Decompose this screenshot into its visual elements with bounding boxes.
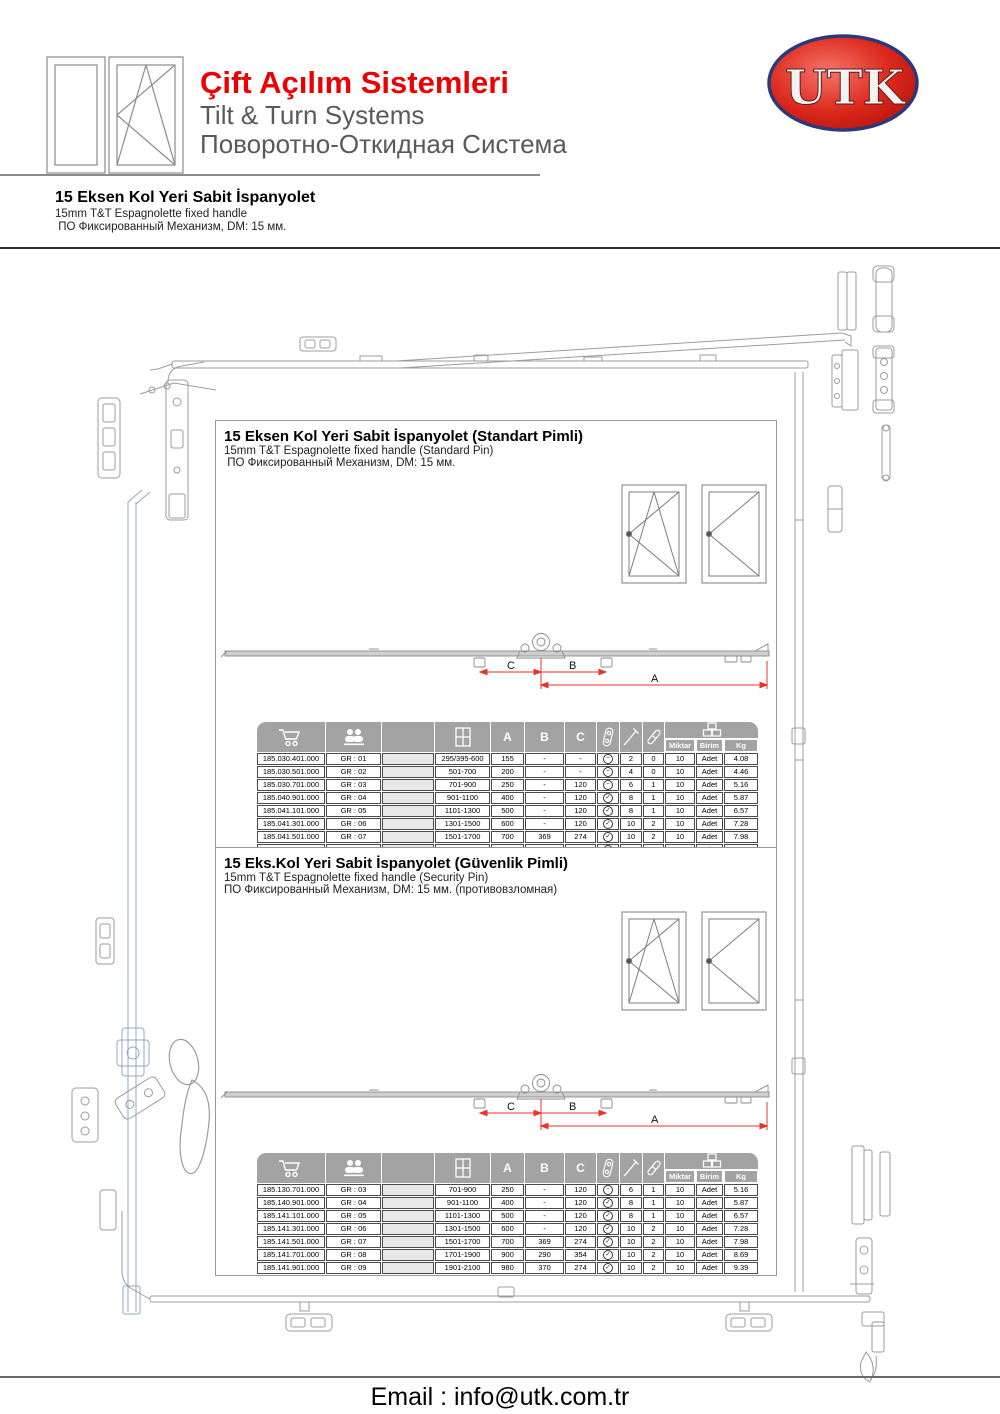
table-cell: 10 xyxy=(665,1184,695,1196)
table-cell: 600 xyxy=(491,818,524,830)
table-row: 185.040.901.000GR : 04901-1100400-120✓81… xyxy=(257,792,758,804)
table-cell xyxy=(382,1210,434,1222)
table-cell: 370 xyxy=(525,1262,564,1274)
subheader-miktar: Miktar xyxy=(665,1170,695,1183)
table-cell: Adet xyxy=(696,818,723,830)
pin-status-cell: − xyxy=(597,753,619,765)
table-cell: 185.141.501.000 xyxy=(257,1236,325,1248)
column-a-header: A xyxy=(491,722,524,752)
espagnolette-drawing: C B A xyxy=(219,1068,773,1140)
pin-status-cell: ✓ xyxy=(597,831,619,843)
table-row: 185.041.501.000GR : 071501-1700700369274… xyxy=(257,831,758,843)
table-cell: 185.141.101.000 xyxy=(257,1210,325,1222)
minus-circle-icon: − xyxy=(603,1185,613,1195)
table-cell: 1 xyxy=(643,1210,664,1222)
pin-status-cell: ✓ xyxy=(597,792,619,804)
section-subtitle-ru: ПО Фиксированный Механизм, DM: 15 мм. xyxy=(224,457,776,469)
window-type-diagrams xyxy=(620,908,772,1018)
table-cell: 0 xyxy=(643,753,664,765)
subheader-kg: Kg xyxy=(724,1170,758,1183)
table-row: 185.141.701.000GR : 081701-1900900290354… xyxy=(257,1249,758,1261)
table-cell: 6.57 xyxy=(724,1210,758,1222)
column-b-header: B xyxy=(525,722,564,752)
corner-drive-drawing xyxy=(166,362,204,520)
check-circle-icon: ✓ xyxy=(603,1250,613,1260)
check-circle-icon: ✓ xyxy=(603,793,613,803)
table-cell: 701-900 xyxy=(435,779,490,791)
table-cell: 2 xyxy=(643,1249,664,1261)
section-title: 15 Eks.Kol Yeri Sabit İspanyolet (Güvenl… xyxy=(224,855,776,872)
table-cell xyxy=(382,1184,434,1196)
column-c-header: C xyxy=(565,1153,596,1183)
table-cell: 2 xyxy=(643,1262,664,1274)
table-cell: 120 xyxy=(565,779,596,791)
table-cell: 1 xyxy=(643,1197,664,1209)
table-cell: 185.041.501.000 xyxy=(257,831,325,843)
pin-status-cell: ✓ xyxy=(597,1223,619,1235)
table-cell: Adet xyxy=(696,1197,723,1209)
table-cell: 0 xyxy=(643,766,664,778)
table-cell: 185.041.101.000 xyxy=(257,805,325,817)
brand-title-ru: Поворотно-Откидная Система xyxy=(200,130,567,159)
minus-circle-icon: − xyxy=(603,754,613,764)
dimension-label-a: A xyxy=(651,673,659,685)
table-cell: Adet xyxy=(696,1184,723,1196)
page-divider xyxy=(0,247,1000,249)
check-circle-icon: ✓ xyxy=(603,832,613,842)
table-cell: 185.030.701.000 xyxy=(257,779,325,791)
table-cell: Adet xyxy=(696,1262,723,1274)
table-cell: GR : 06 xyxy=(326,818,381,830)
cam-pin-icon xyxy=(601,1157,615,1179)
dimension-label-a: A xyxy=(651,1114,659,1126)
table-cell: 120 xyxy=(565,818,596,830)
table-cell: 155 xyxy=(491,753,524,765)
pin-status-cell: ✓ xyxy=(597,1236,619,1248)
table-cell: GR : 01 xyxy=(326,753,381,765)
table-cell: 1501-1700 xyxy=(435,1236,490,1248)
table-cell: GR : 02 xyxy=(326,766,381,778)
section-security-pin: 15 Eks.Kol Yeri Sabit İspanyolet (Güvenl… xyxy=(215,847,777,1276)
pin-status-cell: ✓ xyxy=(597,805,619,817)
cam-pin-icon xyxy=(601,726,615,748)
table-cell: - xyxy=(565,766,596,778)
pin-status-cell: − xyxy=(597,766,619,778)
table-cell: 5.16 xyxy=(724,1184,758,1196)
table-cell: 185.041.301.000 xyxy=(257,818,325,830)
table-cell: Adet xyxy=(696,1210,723,1222)
table-cell: 185.141.901.000 xyxy=(257,1262,325,1274)
check-circle-icon: ✓ xyxy=(603,1198,613,1208)
table-cell: 10 xyxy=(620,1262,642,1274)
table-cell: 501-700 xyxy=(435,766,490,778)
table-cell: 185.030.501.000 xyxy=(257,766,325,778)
section-standard-pin: 15 Eksen Kol Yeri Sabit İspanyolet (Stan… xyxy=(215,420,777,847)
table-cell xyxy=(382,1249,434,1261)
table-cell xyxy=(382,779,434,791)
table-cell xyxy=(382,818,434,830)
check-circle-icon: ✓ xyxy=(603,1237,613,1247)
window-type-diagrams xyxy=(620,481,772,591)
table-cell: 185.040.901.000 xyxy=(257,792,325,804)
table-cell: 400 xyxy=(491,1197,524,1209)
table-cell: 10 xyxy=(665,792,695,804)
brand-title-tr: Çift Açılım Sistemleri xyxy=(200,66,567,101)
table-cell xyxy=(382,792,434,804)
table-cell: 7.98 xyxy=(724,831,758,843)
column-b-header: B xyxy=(525,1153,564,1183)
table-row: 185.141.901.000GR : 091901-2100980370274… xyxy=(257,1262,758,1274)
pin-status-cell: ✓ xyxy=(597,1249,619,1261)
side-rail-drawing xyxy=(792,372,805,1292)
table-cell: GR : 06 xyxy=(326,1223,381,1235)
table-cell: 700 xyxy=(491,831,524,843)
table-cell: 10 xyxy=(665,1223,695,1235)
table-cell: 10 xyxy=(665,1236,695,1248)
subheader-kg: Kg xyxy=(724,739,758,752)
table-cell: 1501-1700 xyxy=(435,831,490,843)
table-cell: Adet xyxy=(696,831,723,843)
espagnolette-drawing: C B A xyxy=(219,627,773,699)
table-cell: 10 xyxy=(620,831,642,843)
table-cell: - xyxy=(525,1197,564,1209)
pin-icon xyxy=(646,727,662,747)
table-cell: GR : 09 xyxy=(326,1262,381,1274)
table-cell: 10 xyxy=(620,1223,642,1235)
table-cell: 600 xyxy=(491,1223,524,1235)
table-row: 185.140.901.000GR : 04901-1100400-120✓81… xyxy=(257,1197,758,1209)
left-accessories-drawings xyxy=(72,918,167,1230)
table-cell: GR : 07 xyxy=(326,1236,381,1248)
table-cell: 2 xyxy=(643,1223,664,1235)
cart-icon xyxy=(278,727,304,747)
table-cell: - xyxy=(525,753,564,765)
pin-status-cell: ✓ xyxy=(597,1197,619,1209)
table-cell: 10 xyxy=(620,1249,642,1261)
table-cell: 10 xyxy=(665,1210,695,1222)
table-row: 185.141.301.000GR : 061301-1500600-120✓1… xyxy=(257,1223,758,1235)
table-cell: - xyxy=(525,1210,564,1222)
table-cell: 290 xyxy=(525,1249,564,1261)
check-circle-icon: ✓ xyxy=(603,806,613,816)
table-cell: 6 xyxy=(620,1184,642,1196)
table-cell: 4.08 xyxy=(724,753,758,765)
table-cell: - xyxy=(565,753,596,765)
table-cell: 1901-2100 xyxy=(435,1262,490,1274)
product-subtitle-en: 15mm T&T Espagnolette fixed handle xyxy=(55,208,315,220)
table-row: 185.130.701.000GR : 03701-900250-120−611… xyxy=(257,1184,758,1196)
table-cell: 369 xyxy=(525,1236,564,1248)
table-cell: 901-1100 xyxy=(435,1197,490,1209)
table-cell: 5.87 xyxy=(724,792,758,804)
table-cell: - xyxy=(525,1184,564,1196)
espagnolette-rail-drawing xyxy=(117,490,150,1314)
subheader-birim: Birim xyxy=(696,739,723,752)
table-cell: 10 xyxy=(620,818,642,830)
table-cell xyxy=(382,1262,434,1274)
table-cell xyxy=(382,766,434,778)
window-grid-icon xyxy=(454,727,472,747)
table-cell: 120 xyxy=(565,805,596,817)
table-cell: 120 xyxy=(565,1223,596,1235)
table-cell: 6.57 xyxy=(724,805,758,817)
table-cell: GR : 04 xyxy=(326,792,381,804)
table-cell: 980 xyxy=(491,1262,524,1274)
table-cell: 900 xyxy=(491,1249,524,1261)
window-grid-icon xyxy=(454,1158,472,1178)
table-cell: Adet xyxy=(696,766,723,778)
window-logo-icon xyxy=(45,55,185,175)
pin-status-cell: ✓ xyxy=(597,818,619,830)
table-cell xyxy=(382,1236,434,1248)
pin-icon xyxy=(646,1158,662,1178)
table-cell: GR : 08 xyxy=(326,1249,381,1261)
package-icon xyxy=(701,722,723,738)
table-cell: - xyxy=(525,805,564,817)
pin-status-cell: ✓ xyxy=(597,1262,619,1274)
table-cell: 185.141.301.000 xyxy=(257,1223,325,1235)
table-cell: GR : 03 xyxy=(326,779,381,791)
table-cell: 9.39 xyxy=(724,1262,758,1274)
minus-circle-icon: − xyxy=(603,767,613,777)
table-cell: 120 xyxy=(565,1210,596,1222)
table-cell: 901-1100 xyxy=(435,792,490,804)
cart-icon xyxy=(278,1158,304,1178)
section-subtitle-ru: ПО Фиксированный Механизм, DM: 15 мм. (п… xyxy=(224,884,776,896)
table-cell: 120 xyxy=(565,792,596,804)
section-subtitle-en: 15mm T&T Espagnolette fixed handle (Secu… xyxy=(224,872,776,884)
table-cell: 274 xyxy=(565,1262,596,1274)
table-cell: GR : 05 xyxy=(326,1210,381,1222)
table-cell: 701-900 xyxy=(435,1184,490,1196)
table-cell: 700 xyxy=(491,1236,524,1248)
product-table-security: A B C Miktar Birim Kg 185.130.701.000GR … xyxy=(256,1152,759,1275)
table-cell: 10 xyxy=(665,1197,695,1209)
top-stay-arm-drawing xyxy=(140,333,851,394)
accessory-parts-drawings xyxy=(828,266,894,532)
table-cell: 5.16 xyxy=(724,779,758,791)
table-cell: 500 xyxy=(491,805,524,817)
table-cell: 7.28 xyxy=(724,818,758,830)
subheader-birim: Birim xyxy=(696,1170,723,1183)
pin-status-cell: ✓ xyxy=(597,1210,619,1222)
table-cell: 295/395-600 xyxy=(435,753,490,765)
table-cell: 10 xyxy=(665,831,695,843)
table-cell: 369 xyxy=(525,831,564,843)
table-cell: 1 xyxy=(643,1184,664,1196)
table-row: 185.041.301.000GR : 061301-1500600-120✓1… xyxy=(257,818,758,830)
group-icon xyxy=(341,727,367,747)
table-cell: 185.140.901.000 xyxy=(257,1197,325,1209)
table-cell: 2 xyxy=(620,753,642,765)
pin-status-cell: − xyxy=(597,779,619,791)
table-cell: Adet xyxy=(696,1223,723,1235)
dimension-label-b: B xyxy=(569,660,576,672)
table-cell: 185.030.401.000 xyxy=(257,753,325,765)
table-cell: 10 xyxy=(665,753,695,765)
table-cell: 10 xyxy=(665,805,695,817)
utk-logo-text: UTK xyxy=(785,60,907,116)
table-cell: Adet xyxy=(696,792,723,804)
footer-divider xyxy=(0,1376,1000,1378)
table-cell: - xyxy=(525,818,564,830)
utk-logo: UTK xyxy=(765,32,921,134)
table-cell: 8 xyxy=(620,792,642,804)
brand-title-en: Tilt & Turn Systems xyxy=(200,101,567,130)
package-icon xyxy=(701,1153,723,1169)
product-intro: 15 Eksen Kol Yeri Sabit İspanyolet 15mm … xyxy=(55,189,315,233)
table-row: 185.141.101.000GR : 051101-1300500-120✓8… xyxy=(257,1210,758,1222)
table-cell: 1 xyxy=(643,792,664,804)
table-cell: 500 xyxy=(491,1210,524,1222)
product-subtitle-ru: ПО Фиксированный Механизм, DM: 15 мм. xyxy=(55,221,315,233)
table-cell: GR : 03 xyxy=(326,1184,381,1196)
table-cell: Adet xyxy=(696,805,723,817)
table-cell: 4 xyxy=(620,766,642,778)
table-cell: 8 xyxy=(620,1210,642,1222)
table-cell: GR : 05 xyxy=(326,805,381,817)
table-cell: 10 xyxy=(665,766,695,778)
table-cell: 400 xyxy=(491,792,524,804)
table-cell xyxy=(382,805,434,817)
check-circle-icon: ✓ xyxy=(603,819,613,829)
column-c-header: C xyxy=(565,722,596,752)
table-cell: GR : 07 xyxy=(326,831,381,843)
check-circle-icon: ✓ xyxy=(603,1211,613,1221)
table-cell: Adet xyxy=(696,1236,723,1248)
table-cell: 6 xyxy=(620,779,642,791)
table-cell: Adet xyxy=(696,753,723,765)
table-cell: 120 xyxy=(565,1184,596,1196)
table-cell: 1 xyxy=(643,779,664,791)
table-cell: 8.69 xyxy=(724,1249,758,1261)
table-cell: 10 xyxy=(665,779,695,791)
table-row: 185.030.501.000GR : 02501-700200--−4010A… xyxy=(257,766,758,778)
dimension-label-b: B xyxy=(569,1101,576,1113)
table-cell: 2 xyxy=(643,831,664,843)
table-cell: 5.87 xyxy=(724,1197,758,1209)
table-cell: - xyxy=(525,766,564,778)
footer-email: Email : info@utk.com.tr xyxy=(0,1383,1000,1412)
table-cell: - xyxy=(525,1223,564,1235)
accessory-parts-lower-drawings xyxy=(850,1146,890,1382)
table-cell: 4.46 xyxy=(724,766,758,778)
table-cell: 250 xyxy=(491,779,524,791)
table-row: 185.030.701.000GR : 03701-900250-120−611… xyxy=(257,779,758,791)
table-cell: Adet xyxy=(696,779,723,791)
table-cell: 1101-1300 xyxy=(435,1210,490,1222)
table-row: 185.041.101.000GR : 051101-1300500-120✓8… xyxy=(257,805,758,817)
keeper-plate-drawing xyxy=(98,398,120,478)
pin-status-cell: − xyxy=(597,1184,619,1196)
section-subtitle-en: 15mm T&T Espagnolette fixed handle (Stan… xyxy=(224,445,776,457)
window-handle-drawing xyxy=(165,1036,210,1173)
table-cell: 1101-1300 xyxy=(435,805,490,817)
table-cell: 10 xyxy=(665,1262,695,1274)
table-cell xyxy=(382,1197,434,1209)
table-cell: - xyxy=(525,779,564,791)
table-cell: 1701-1900 xyxy=(435,1249,490,1261)
table-cell: 200 xyxy=(491,766,524,778)
table-cell: 120 xyxy=(565,1197,596,1209)
product-title: 15 Eksen Kol Yeri Sabit İspanyolet xyxy=(55,189,315,207)
table-row: 185.030.401.000GR : 01295/395-600155--−2… xyxy=(257,753,758,765)
table-cell: Adet xyxy=(696,1249,723,1261)
table-cell: 250 xyxy=(491,1184,524,1196)
table-cell: 185.141.701.000 xyxy=(257,1249,325,1261)
table-cell xyxy=(382,1223,434,1235)
table-cell xyxy=(382,753,434,765)
table-cell: 1301-1500 xyxy=(435,1223,490,1235)
dimension-label-c: C xyxy=(507,1101,515,1113)
subheader-miktar: Miktar xyxy=(665,739,695,752)
table-cell: GR : 04 xyxy=(326,1197,381,1209)
table-row: 185.141.501.000GR : 071501-1700700369274… xyxy=(257,1236,758,1248)
table-cell: 1301-1500 xyxy=(435,818,490,830)
table-cell: 2 xyxy=(643,1236,664,1248)
check-circle-icon: ✓ xyxy=(603,1263,613,1273)
table-cell: - xyxy=(525,792,564,804)
table-cell: 274 xyxy=(565,1236,596,1248)
dimension-label-c: C xyxy=(507,660,515,672)
table-cell: 8 xyxy=(620,805,642,817)
table-cell: 2 xyxy=(643,818,664,830)
table-cell: 8 xyxy=(620,1197,642,1209)
check-circle-icon: ✓ xyxy=(603,1224,613,1234)
table-cell: 274 xyxy=(565,831,596,843)
group-icon xyxy=(341,1158,367,1178)
table-cell: 354 xyxy=(565,1249,596,1261)
section-title: 15 Eksen Kol Yeri Sabit İspanyolet (Stan… xyxy=(224,428,776,445)
table-body: 185.130.701.000GR : 03701-900250-120−611… xyxy=(257,1184,758,1274)
catalog-page: { "header": { "title_tr": "Çift Açılım S… xyxy=(0,0,1000,1414)
table-cell xyxy=(382,831,434,843)
table-cell: 10 xyxy=(620,1236,642,1248)
table-cell: 10 xyxy=(665,818,695,830)
table-cell: 10 xyxy=(665,1249,695,1261)
minus-circle-icon: − xyxy=(603,780,613,790)
table-cell: 1 xyxy=(643,805,664,817)
page-header: Çift Açılım Sistemleri Tilt & Turn Syste… xyxy=(0,0,1000,176)
column-a-header: A xyxy=(491,1153,524,1183)
table-cell: 7.98 xyxy=(724,1236,758,1248)
screw-icon xyxy=(622,1158,640,1178)
screw-icon xyxy=(622,727,640,747)
table-cell: 185.130.701.000 xyxy=(257,1184,325,1196)
table-cell: 7.28 xyxy=(724,1223,758,1235)
